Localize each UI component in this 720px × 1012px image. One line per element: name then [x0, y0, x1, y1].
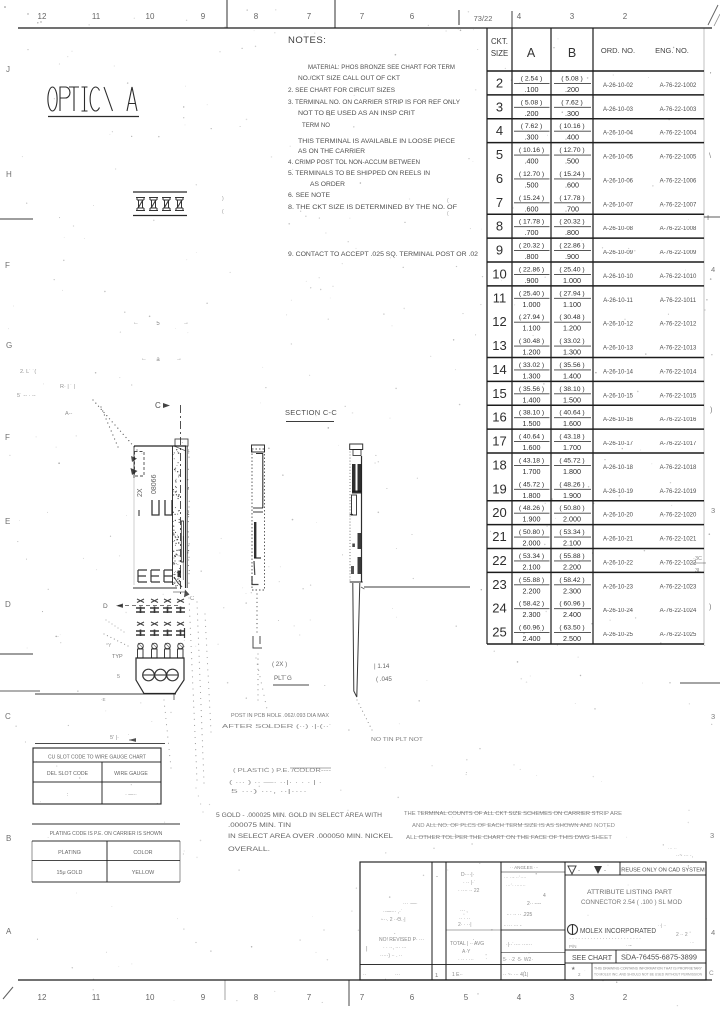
svg-text:TO MOLEX INC. AND SHOULD NOT B: TO MOLEX INC. AND SHOULD NOT BE USED WIT… — [594, 973, 702, 977]
svg-text:A-26-10-15: A-26-10-15 — [603, 393, 634, 399]
svg-text:··—··· ,·´: ··—··· ,·´ — [383, 909, 403, 915]
svg-text:2.200: 2.200 — [563, 562, 581, 571]
svg-text:TERM NO: TERM NO — [302, 122, 330, 129]
svg-text:C: C — [709, 970, 714, 977]
svg-text:( 15.24 ): ( 15.24 ) — [519, 195, 544, 202]
svg-text:( 55.88 ): ( 55.88 ) — [559, 553, 584, 560]
svg-text:···´· ·······: ···´· ······· — [506, 883, 526, 888]
svg-text:( 17.78 ): ( 17.78 ) — [519, 219, 544, 226]
svg-text:73/22: 73/22 — [474, 14, 493, 23]
svg-text:2X: 2X — [137, 488, 144, 497]
svg-text:YELLOW: YELLOW — [132, 870, 155, 876]
svg-text:5: 5 — [117, 674, 120, 680]
svg-text:A-76-22-1020: A-76-22-1020 — [660, 513, 697, 519]
svg-text:7: 7 — [360, 993, 365, 1002]
svg-text:1.200: 1.200 — [563, 324, 581, 333]
svg-text:5 GOLD - .000025 MIN. GOLD IN: 5 GOLD - .000025 MIN. GOLD IN SELECT ARE… — [216, 812, 382, 819]
svg-text:A-26-10-21: A-26-10-21 — [603, 537, 634, 543]
svg-text:A--: A-- — [65, 411, 73, 417]
svg-text:( 20.32 ): ( 20.32 ) — [559, 219, 584, 226]
svg-text:( 17.78 ): ( 17.78 ) — [559, 195, 584, 202]
svg-text:- ··· ··· -: - ··· ··· - — [504, 923, 522, 929]
svg-text:( 22.86 ): ( 22.86 ) — [519, 266, 544, 273]
svg-text:2: 2 — [623, 12, 628, 21]
svg-text:( 38.10 ): ( 38.10 ) — [519, 410, 544, 417]
svg-text:6: 6 — [410, 993, 415, 1002]
svg-text:AS ORDER: AS ORDER — [310, 181, 345, 188]
svg-text:A-26-10-14: A-26-10-14 — [603, 369, 634, 375]
svg-text:( 22.86 ): ( 22.86 ) — [559, 243, 584, 250]
svg-text:→: → — [176, 356, 182, 362]
svg-text:5: 5 — [496, 147, 503, 162]
svg-text:( 50.80 ): ( 50.80 ) — [559, 505, 584, 512]
svg-text:A-26-10-19: A-26-10-19 — [603, 489, 634, 495]
svg-text:SEE CHART: SEE CHART — [572, 953, 612, 962]
svg-text:A-26-10-10: A-26-10-10 — [603, 274, 634, 280]
svg-text:AS ON THE CARRIER: AS ON THE CARRIER — [298, 148, 365, 155]
svg-text:D····|·: D····|· — [461, 872, 475, 878]
svg-text:· ·· · ···: · ·· · ··· — [458, 957, 474, 963]
svg-text:· ···· ·· 22: · ···· ·· 22 — [458, 888, 480, 894]
svg-text:CKT.: CKT. — [491, 37, 508, 46]
svg-text:R· | ´ |: R· | ´ | — [60, 384, 75, 390]
svg-text:3: 3 — [496, 99, 503, 114]
svg-text:( 35.56 ): ( 35.56 ) — [559, 362, 584, 369]
svg-text:··· ,: ··· , — [460, 908, 468, 914]
svg-text:A-26-10-05: A-26-10-05 — [603, 155, 634, 161]
svg-text:B: B — [568, 46, 576, 60]
svg-text:PLATING CODE IS P.E. ON CARRIE: PLATING CODE IS P.E. ON CARRIER IS SHOWN — [50, 831, 163, 837]
svg-text:14: 14 — [492, 362, 506, 377]
svg-text:★: ★ — [571, 966, 576, 972]
svg-text:.800: .800 — [525, 252, 539, 261]
svg-text:OVERALL.: OVERALL. — [228, 846, 270, 853]
svg-text:·····) ·· . ··: ·····) ·· . ·· — [380, 953, 403, 959]
svg-text:( 40.64 ): ( 40.64 ) — [519, 434, 544, 441]
svg-text:( 7.62 ): ( 7.62 ) — [561, 99, 583, 106]
svg-text:·· ANGLES ···: ·· ANGLES ··· — [510, 865, 539, 870]
svg-text:.500: .500 — [565, 157, 579, 166]
svg-text:···: ··· — [690, 940, 695, 945]
svg-text:.600: .600 — [565, 180, 579, 189]
svg-text:SIZE: SIZE — [491, 49, 508, 58]
svg-text:.000075 MIN. TIN: .000075 MIN. TIN — [228, 822, 291, 829]
svg-text:08066: 08066 — [151, 474, 158, 494]
svg-text:2.300: 2.300 — [523, 610, 541, 619]
svg-text:11: 11 — [493, 290, 507, 305]
svg-text:PLATING: PLATING — [58, 850, 81, 856]
svg-text:P/N: P/N — [569, 944, 577, 949]
svg-text:( 5.08 ): ( 5.08 ) — [561, 75, 583, 82]
svg-text:A-26-10-20: A-26-10-20 — [603, 513, 634, 519]
svg-text:( 40.64 ): ( 40.64 ) — [559, 410, 584, 417]
svg-text:CU SLOT CODE TO WIRE GAUGE CHA: CU SLOT CODE TO WIRE GAUGE CHART — [48, 755, 146, 761]
svg-text:19: 19 — [492, 481, 506, 496]
svg-text:A-26-10-13: A-26-10-13 — [603, 346, 634, 352]
svg-text:°Y: °Y — [106, 643, 112, 649]
svg-text:5´ -- · --: 5´ -- · -- — [17, 393, 36, 399]
svg-text:D: D — [103, 603, 108, 610]
svg-text:( ··· ) ·· —· ··|· · · · | ·: ( ··· ) ·· —· ··|· · · · | · — [229, 780, 322, 786]
svg-text:.500: .500 — [525, 180, 539, 189]
svg-text:DEL SLOT CODE: DEL SLOT CODE — [47, 771, 89, 777]
svg-text:1.000: 1.000 — [563, 276, 581, 285]
svg-text:3: 3 — [711, 506, 715, 515]
svg-text:A-76-22-1004: A-76-22-1004 — [660, 131, 697, 137]
svg-text:A-26-10-18: A-26-10-18 — [603, 465, 634, 471]
svg-text:( 53.34 ): ( 53.34 ) — [519, 553, 544, 560]
svg-text:1.400: 1.400 — [523, 395, 541, 404]
svg-text:MOLEX INCORPORATED: MOLEX INCORPORATED — [580, 926, 656, 935]
svg-text:D: D — [5, 600, 11, 609]
svg-text:7: 7 — [360, 12, 365, 21]
svg-text:1.000: 1.000 — [523, 300, 541, 309]
svg-text:ATTRIBUTE LISTING PART: ATTRIBUTE LISTING PART — [587, 889, 672, 896]
svg-text:3: 3 — [710, 831, 714, 840]
svg-text:( 33.02 ): ( 33.02 ) — [559, 338, 584, 345]
svg-text:1.100: 1.100 — [523, 324, 541, 333]
svg-text:( 12.70 ): ( 12.70 ) — [519, 171, 544, 178]
svg-text:1.200: 1.200 — [523, 348, 541, 357]
svg-text:( 12.70 ): ( 12.70 ) — [559, 147, 584, 154]
svg-text:( 50.80 ): ( 50.80 ) — [519, 529, 544, 536]
svg-text:··~: ··~ — [626, 943, 632, 948]
svg-text:2: 2 — [623, 993, 628, 1002]
svg-text:···. 2 ··Θ.·|: ···. 2 ··Θ.·| — [382, 917, 406, 923]
svg-text:( 45.72 ): ( 45.72 ) — [559, 457, 584, 464]
svg-text:-: - — [604, 868, 606, 874]
svg-text:A-76-22-1015: A-76-22-1015 — [660, 393, 697, 399]
svg-text:2.000: 2.000 — [563, 515, 581, 524]
svg-text:6. SEE NOTE: 6. SEE NOTE — [288, 192, 330, 199]
svg-text:E: E — [5, 517, 10, 526]
svg-text:A-76-22-1016: A-76-22-1016 — [660, 417, 697, 423]
svg-text:( 15.24 ): ( 15.24 ) — [559, 171, 584, 178]
svg-text:1.700: 1.700 — [523, 467, 541, 476]
svg-text:4: 4 — [711, 265, 715, 274]
svg-text:NO TIN PLT NOT: NO TIN PLT NOT — [371, 737, 424, 743]
svg-text:PLT´G: PLT´G — [274, 675, 292, 682]
svg-text:17: 17 — [492, 434, 506, 449]
svg-text:F: F — [5, 261, 10, 270]
svg-text:A-76-22-1025: A-76-22-1025 — [660, 632, 697, 638]
svg-text:3: 3 — [570, 12, 575, 21]
svg-text:13: 13 — [492, 338, 506, 353]
svg-text:REUSE ONLY ON CAD SYSTEM: REUSE ONLY ON CAD SYSTEM — [621, 868, 705, 874]
svg-text:( 10.16 ): ( 10.16 ) — [559, 123, 584, 130]
svg-text:7: 7 — [307, 993, 312, 1002]
svg-text:( 48.26 ): ( 48.26 ) — [559, 481, 584, 488]
svg-text:ORD. NO.: ORD. NO. — [601, 46, 635, 55]
svg-text:A-76-22-1019: A-76-22-1019 — [660, 489, 697, 495]
svg-text:8: 8 — [496, 219, 503, 234]
svg-text:.400: .400 — [565, 133, 579, 142]
svg-text:A-26-10-07: A-26-10-07 — [603, 202, 634, 208]
svg-text:A-76-22-1018: A-76-22-1018 — [660, 465, 697, 471]
svg-text:( 25.40 ): ( 25.40 ) — [519, 290, 544, 297]
svg-text:15μ GOLD: 15μ GOLD — [57, 870, 83, 876]
svg-text:··· ··: ··· ·· — [668, 846, 677, 851]
svg-text:( 60.96 ): ( 60.96 ) — [559, 601, 584, 608]
svg-text:5: 5 — [464, 993, 469, 1002]
svg-text:A-76-22-1005: A-76-22-1005 — [660, 155, 697, 161]
svg-text:·|··´···· ······: ·|··´···· ······ — [506, 942, 532, 948]
svg-text:( 63.50 ): ( 63.50 ) — [559, 625, 584, 632]
svg-text:1.400: 1.400 — [563, 371, 581, 380]
svg-text:21: 21 — [492, 529, 506, 544]
svg-text:H: H — [6, 170, 12, 179]
svg-text:| 1.14: | 1.14 — [374, 663, 390, 670]
svg-text:( 2X ): ( 2X ) — [272, 661, 287, 668]
svg-text:1.900: 1.900 — [563, 491, 581, 500]
svg-text:( 27.94 ): ( 27.94 ) — [559, 290, 584, 297]
svg-text:NO! REVISED P· ···: NO! REVISED P· ··· — [379, 937, 424, 943]
svg-text:2 ·· 2: 2 ·· 2 — [676, 932, 688, 938]
svg-text:1.100: 1.100 — [563, 300, 581, 309]
svg-text:9: 9 — [201, 993, 206, 1002]
svg-text:A-26-10-06: A-26-10-06 — [603, 178, 634, 184]
svg-text:2· · ··|: 2· · ··| — [458, 922, 472, 928]
svg-text:4. CRIMP POST TOL NON-ACCUM BE: 4. CRIMP POST TOL NON-ACCUM BETWEEN — [288, 159, 420, 166]
svg-text:·· ~· ··· 4|1|: ·· ~· ··· 4|1| — [503, 972, 528, 978]
svg-text:1.300: 1.300 — [563, 348, 581, 357]
svg-text:10: 10 — [492, 266, 506, 281]
svg-text:4: 4 — [517, 12, 522, 21]
svg-text:23: 23 — [492, 577, 506, 592]
svg-text:A-76-22-1024: A-76-22-1024 — [660, 608, 697, 614]
svg-text:COLOR: COLOR — [133, 850, 152, 856]
svg-text:6: 6 — [496, 171, 503, 186]
svg-text:22: 22 — [492, 553, 506, 568]
svg-text:10: 10 — [146, 12, 155, 21]
svg-text:25: 25 — [492, 625, 506, 640]
svg-text:( 58.42 ): ( 58.42 ) — [519, 601, 544, 608]
svg-text:MATERIAL: PHOS BRONZE SEE CHAR: MATERIAL: PHOS BRONZE SEE CHART FOR TERM — [308, 64, 455, 71]
svg-text:→: → — [183, 320, 189, 326]
svg-text:IN SELECT AREA OVER .000050 MI: IN SELECT AREA OVER .000050 MIN. NICKEL — [228, 833, 394, 840]
svg-text:( 30.48 ): ( 30.48 ) — [519, 338, 544, 345]
svg-text:1.700: 1.700 — [563, 443, 581, 452]
svg-text:( 53.34 ): ( 53.34 ) — [559, 529, 584, 536]
svg-text:( 30.48 ): ( 30.48 ) — [559, 314, 584, 321]
svg-text:WIRE GAUGE: WIRE GAUGE — [114, 771, 148, 777]
svg-text:A-76-22-1021: A-76-22-1021 — [660, 537, 697, 543]
svg-text:( 43.18 ): ( 43.18 ) — [519, 457, 544, 464]
svg-text:3. TERMINAL NO. ON CARRIER STR: 3. TERMINAL NO. ON CARRIER STRIP IS FOR … — [288, 99, 460, 106]
svg-text:NOT TO BE USED AS AN INSP CRIT: NOT TO BE USED AS AN INSP CRIT — [298, 110, 415, 117]
svg-text:- · ·· ·· .225: - · ·· ·· .225 — [507, 912, 532, 918]
svg-text:( 2.54 ): ( 2.54 ) — [521, 75, 543, 82]
svg-text:1.500: 1.500 — [523, 419, 541, 428]
svg-text:11: 11 — [92, 993, 101, 1002]
svg-text:.700: .700 — [525, 228, 539, 237]
svg-text:C: C — [5, 712, 11, 721]
svg-text:( PLASTIC ) P.E. /COLOR----: ( PLASTIC ) P.E. /COLOR---- — [233, 768, 331, 774]
svg-text:2.000: 2.000 — [523, 539, 541, 548]
svg-text:-: - — [578, 868, 580, 874]
svg-text:A-26-10-08: A-26-10-08 — [603, 226, 634, 232]
svg-text:.600: .600 — [525, 204, 539, 213]
svg-text:.400: .400 — [525, 157, 539, 166]
svg-text:.200: .200 — [525, 109, 539, 118]
svg-text:( 55.88 ): ( 55.88 ) — [519, 577, 544, 584]
svg-text:ENG. NO.: ENG. NO. — [655, 46, 689, 55]
svg-text:A-76-22-1008: A-76-22-1008 — [660, 226, 697, 232]
svg-text:THIS TERMINAL IS AVAILABLE IN: THIS TERMINAL IS AVAILABLE IN LOOSE PIEC… — [298, 138, 455, 145]
svg-text:A-26-10-04: A-26-10-04 — [603, 131, 634, 137]
svg-text:.300: .300 — [565, 109, 579, 118]
svg-text:TYP: TYP — [112, 654, 123, 660]
svg-text:.300: .300 — [525, 133, 539, 142]
svg-text:2·· ----: 2·· ---- — [527, 901, 541, 907]
svg-text:4: 4 — [711, 928, 715, 937]
svg-text:NO./CKT SIZE CALL OUT OF CKT: NO./CKT SIZE CALL OUT OF CKT — [298, 75, 400, 82]
svg-text:A-76-22-1009: A-76-22-1009 — [660, 250, 697, 256]
svg-text:A-26-10-25: A-26-10-25 — [603, 632, 634, 638]
svg-text:··· ·—·: ··· ·—· — [403, 901, 418, 907]
svg-text:ALL OTHER TOL PER THE CHART ON: ALL OTHER TOL PER THE CHART ON THE FACE … — [406, 835, 612, 841]
svg-text:A-76-22-1007: A-76-22-1007 — [660, 202, 697, 208]
svg-text:B: B — [6, 834, 11, 843]
svg-text:( 7.62 ): ( 7.62 ) — [521, 123, 543, 130]
svg-text:C: C — [155, 401, 161, 410]
svg-text:12: 12 — [492, 314, 506, 329]
svg-text:···: ··· — [395, 972, 400, 978]
svg-text:( 20.32 ): ( 20.32 ) — [519, 243, 544, 250]
svg-text:A-76-22-1006: A-76-22-1006 — [660, 178, 697, 184]
svg-text:THIS DRAWING CONTAINS INFORMAT: THIS DRAWING CONTAINS INFORMATION THAT I… — [594, 967, 703, 971]
svg-text:7: 7 — [307, 12, 312, 21]
svg-text:2.100: 2.100 — [523, 562, 541, 571]
svg-text:←: ← — [141, 356, 147, 362]
svg-text:A-76-22-1010: A-76-22-1010 — [660, 274, 697, 280]
svg-text:A-76-22-1023: A-76-22-1023 — [660, 584, 697, 590]
svg-text:1.300: 1.300 — [523, 371, 541, 380]
svg-text:A-76-22-1014: A-76-22-1014 — [660, 369, 697, 375]
svg-text:( 33.02 ): ( 33.02 ) — [519, 362, 544, 369]
svg-text:POST IN PCB HOLE .062/.093 DIA: POST IN PCB HOLE .062/.093 DIA MAX — [231, 713, 329, 719]
svg-text:.100: .100 — [525, 85, 539, 94]
svg-text:THE TERMINAL COUNTS OF ALL CKT: THE TERMINAL COUNTS OF ALL CKT SIZE SCHE… — [404, 811, 622, 817]
svg-text:( 10.16 ): ( 10.16 ) — [519, 147, 544, 154]
svg-text:··~ ··· ·,: ··~ ··· ·, — [676, 853, 693, 859]
svg-text:3: 3 — [570, 993, 575, 1002]
svg-text:A-76-22-1013: A-76-22-1013 — [660, 346, 697, 352]
svg-text:A-26-10-09: A-26-10-09 — [603, 250, 634, 256]
svg-text:A-26-10-23: A-26-10-23 — [603, 584, 634, 590]
svg-text:G: G — [6, 341, 12, 350]
svg-text:J: J — [6, 65, 10, 74]
svg-text:A-76-22-1022: A-76-22-1022 — [660, 560, 697, 566]
svg-text:9. CONTACT TO ACCEPT .025 SQ.: 9. CONTACT TO ACCEPT .025 SQ. TERMINAL P… — [288, 251, 478, 258]
svg-text:4: 4 — [543, 893, 546, 899]
svg-text:.200: .200 — [565, 85, 579, 94]
svg-text:6: 6 — [410, 12, 415, 21]
svg-text:12: 12 — [38, 993, 47, 1002]
svg-text:··· ··- ··´····: ··· ··- ··´···· — [504, 875, 526, 880]
svg-text:A-26-10-16: A-26-10-16 — [603, 417, 634, 423]
svg-text:AFTER SOLDER (··) ·|·(··´: AFTER SOLDER (··) ·|·(··´ — [222, 724, 332, 730]
svg-text:9: 9 — [496, 243, 503, 258]
svg-text:1.600: 1.600 — [523, 443, 541, 452]
svg-text:4: 4 — [496, 123, 503, 138]
svg-text:5. TERMINALS TO BE SHIPPED ON: 5. TERMINALS TO BE SHIPPED ON REELS IN — [288, 170, 430, 177]
svg-text:8: 8 — [254, 993, 259, 1002]
svg-text:· · ··, ··· ···: · · ··, ··· ··· — [383, 945, 407, 951]
svg-text:8: 8 — [254, 12, 259, 21]
svg-text:.900: .900 — [565, 252, 579, 261]
svg-text:( 35.56 ): ( 35.56 ) — [519, 386, 544, 393]
svg-text:24: 24 — [492, 601, 506, 616]
svg-text:C: C — [190, 596, 195, 602]
svg-text:7: 7 — [496, 195, 503, 210]
svg-text:A-76-22-1017: A-76-22-1017 — [660, 441, 697, 447]
svg-text:4: 4 — [517, 993, 522, 1002]
svg-text:( 5.08 ): ( 5.08 ) — [521, 99, 543, 106]
svg-text:· ·· |·´: · ·· |·´ — [463, 880, 476, 886]
svg-text:3: 3 — [711, 712, 715, 721]
svg-text:··| ··: ··| ·· — [658, 923, 666, 928]
svg-text:( 45.72 ): ( 45.72 ) — [519, 481, 544, 488]
svg-text:18: 18 — [492, 457, 506, 472]
svg-text:AND ALL NO. OF PLCS OF EACH TE: AND ALL NO. OF PLCS OF EACH TERM SIZE IS… — [412, 823, 615, 829]
svg-text:←: ← — [133, 320, 139, 326]
svg-text:A-26-10-17: A-26-10-17 — [603, 441, 634, 447]
svg-text:A: A — [527, 46, 536, 60]
svg-text:A-26-10-24: A-26-10-24 — [603, 608, 634, 614]
svg-text:( 58.42 ): ( 58.42 ) — [559, 577, 584, 584]
svg-text:SECTION C-C: SECTION C-C — [285, 408, 337, 417]
svg-text:··: ·· — [363, 972, 367, 978]
svg-text:12: 12 — [38, 12, 47, 21]
svg-text:2.400: 2.400 — [523, 634, 541, 643]
svg-text:-: - — [436, 874, 438, 880]
svg-text:· —··: · —·· — [125, 792, 137, 798]
svg-text:2.200: 2.200 — [523, 586, 541, 595]
svg-text:5· ··2 ·5· W2·: 5· ··2 ·5· W2· — [503, 957, 533, 963]
svg-text:.700: .700 — [565, 204, 579, 213]
svg-text:1 E··: 1 E·· — [452, 972, 463, 978]
svg-text:1.800: 1.800 — [563, 467, 581, 476]
svg-text:2.400: 2.400 — [563, 610, 581, 619]
svg-text:2: 2 — [496, 75, 503, 90]
svg-text:SDA-76455-6875-3899: SDA-76455-6875-3899 — [621, 955, 697, 962]
svg-text:·E: ·E — [101, 697, 106, 702]
svg-text:( 48.26 ): ( 48.26 ) — [519, 505, 544, 512]
svg-text:5' |·: 5' |· — [110, 735, 119, 741]
svg-text:F: F — [5, 433, 10, 442]
svg-text:.900: .900 — [525, 276, 539, 285]
svg-text:16: 16 — [492, 410, 506, 425]
svg-text:( 43.18 ): ( 43.18 ) — [559, 434, 584, 441]
svg-text:CONNECTOR 2.54 ( .100 ) SL MOD: CONNECTOR 2.54 ( .100 ) SL MOD — [581, 899, 682, 906]
svg-text:A-76-22-1003: A-76-22-1003 — [660, 107, 697, 113]
svg-text:A-26-10-12: A-26-10-12 — [603, 322, 634, 328]
svg-text:( 38.10 ): ( 38.10 ) — [559, 386, 584, 393]
svg-text:15: 15 — [492, 386, 506, 401]
svg-text:A-26-10-22: A-26-10-22 — [603, 560, 634, 566]
svg-text:2.300: 2.300 — [563, 586, 581, 595]
svg-text:NOTES:: NOTES: — [288, 35, 326, 46]
svg-text:10: 10 — [146, 993, 155, 1002]
svg-text:( 27.94 ): ( 27.94 ) — [519, 314, 544, 321]
svg-text:.800: .800 — [565, 228, 579, 237]
svg-text:2. L´ ´(: 2. L´ ´( — [20, 369, 36, 375]
svg-text:( 25.40 ): ( 25.40 ) — [559, 266, 584, 273]
svg-text:9: 9 — [201, 12, 206, 21]
svg-text:A·Y: A·Y — [462, 949, 471, 955]
svg-text:1.500: 1.500 — [563, 395, 581, 404]
